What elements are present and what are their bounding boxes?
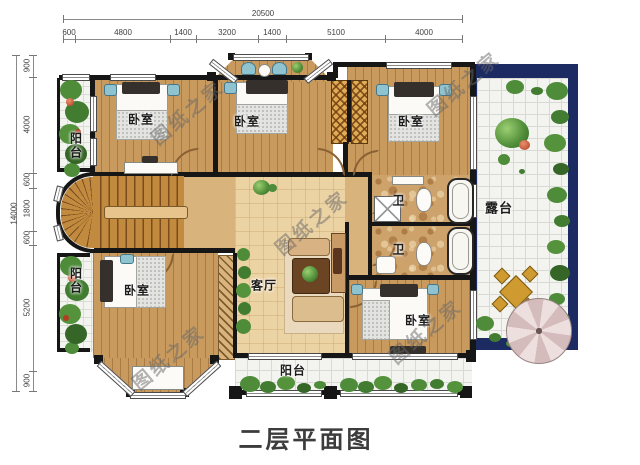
wall [59,75,335,80]
dim-seg: 600 [49,28,89,37]
window [248,353,322,360]
dim-seg: 900 [23,363,32,399]
bathtub [447,227,474,275]
chair [142,156,158,163]
bay-window [130,392,186,399]
window [340,390,458,397]
dim-seg: 3200 [207,28,247,37]
drawing-title: 二层平面图 [239,420,374,455]
bay-chair [272,62,287,75]
room-label-balcony: 阳台 [280,362,306,379]
headboard [380,284,418,297]
door-arc [317,148,345,176]
flowers-balcony-tl [66,98,74,106]
nightstand [376,84,389,96]
dim-left-seg-line [33,55,34,392]
room-label-bath: 卫 [392,192,405,209]
dim-seg: 5100 [316,28,356,37]
parasol [506,298,572,364]
dim-top-total-line [63,19,463,20]
window [470,290,477,340]
post [460,386,472,398]
bay-chair [241,62,256,75]
table-plant [302,266,318,282]
closet-right [351,80,368,144]
headboard [246,80,288,94]
toilet [416,188,432,212]
dim-seg: 600 [23,220,32,256]
room-label-bedroom: 卧室 [398,113,424,130]
wall [233,253,237,358]
bathtub [447,178,474,224]
dim-seg: 4800 [103,28,143,37]
floor-plan-canvas: 20500 600 4800 1400 3200 1400 5100 4000 … [0,0,640,465]
nightstand [167,84,180,96]
room-label-bedroom: 卧室 [124,282,150,299]
dim-seg: 4000 [404,28,444,37]
bed-blanket [362,300,390,340]
post [324,386,337,399]
hedge-terrace-top [506,80,524,94]
room-label-balcony: 阳台 [68,267,85,295]
terrace-bottom-shrubs [476,316,494,331]
wall [59,348,90,352]
dim-tick [12,391,20,392]
room-label-bedroom: 卧室 [234,113,260,130]
wall [347,80,351,142]
headboard [122,82,160,94]
hedge-balcony-bottom-right [340,378,358,392]
room-label-bath: 卫 [392,241,405,258]
room-label-balcony: 阳台 [68,132,85,160]
post [327,72,336,81]
dim-top-total: 20500 [233,9,293,18]
plants-balcony-tl [60,80,82,100]
dim-tick [63,15,64,23]
nightstand [351,284,363,295]
plant-strip [237,248,250,261]
washer [376,256,396,274]
window [110,74,156,81]
window [386,62,452,69]
dim-seg: 900 [23,48,32,84]
dim-seg: 5200 [23,290,32,326]
tv [333,248,342,274]
potted-plant [292,62,303,73]
dim-seg: 4000 [23,107,32,143]
dim-tick [12,55,20,56]
dim-tick [385,35,386,43]
vanity [392,176,424,185]
wall [59,168,90,172]
bay-table [258,64,271,77]
room-label-terrace: 露台 [485,198,513,217]
post [466,350,476,362]
dim-seg: 1400 [163,28,203,37]
terrace-flower [519,140,530,150]
dim-tick [462,15,463,23]
dim-left-total: 14000 [10,196,19,232]
dim-seg: 1400 [252,28,292,37]
nightstand [120,254,134,264]
hedge-terrace-right [546,82,568,100]
dim-tick [462,35,463,43]
nightstand [104,84,117,96]
window [90,96,97,132]
window [470,96,477,170]
hedge-balcony-bottom-left [240,376,260,392]
toilet [416,242,432,266]
dim-top-seg-line [63,39,463,40]
desk [124,162,178,174]
stairs-stringer [104,206,188,219]
nightstand [427,284,439,295]
terrace-small-plants [498,154,510,165]
room-label-living: 客厅 [251,277,277,294]
post [229,386,242,399]
window [90,138,97,166]
bay-window [233,54,309,61]
hall-plant-2 [268,184,277,192]
sofa [292,296,344,322]
headboard [100,260,113,302]
window [246,390,322,397]
